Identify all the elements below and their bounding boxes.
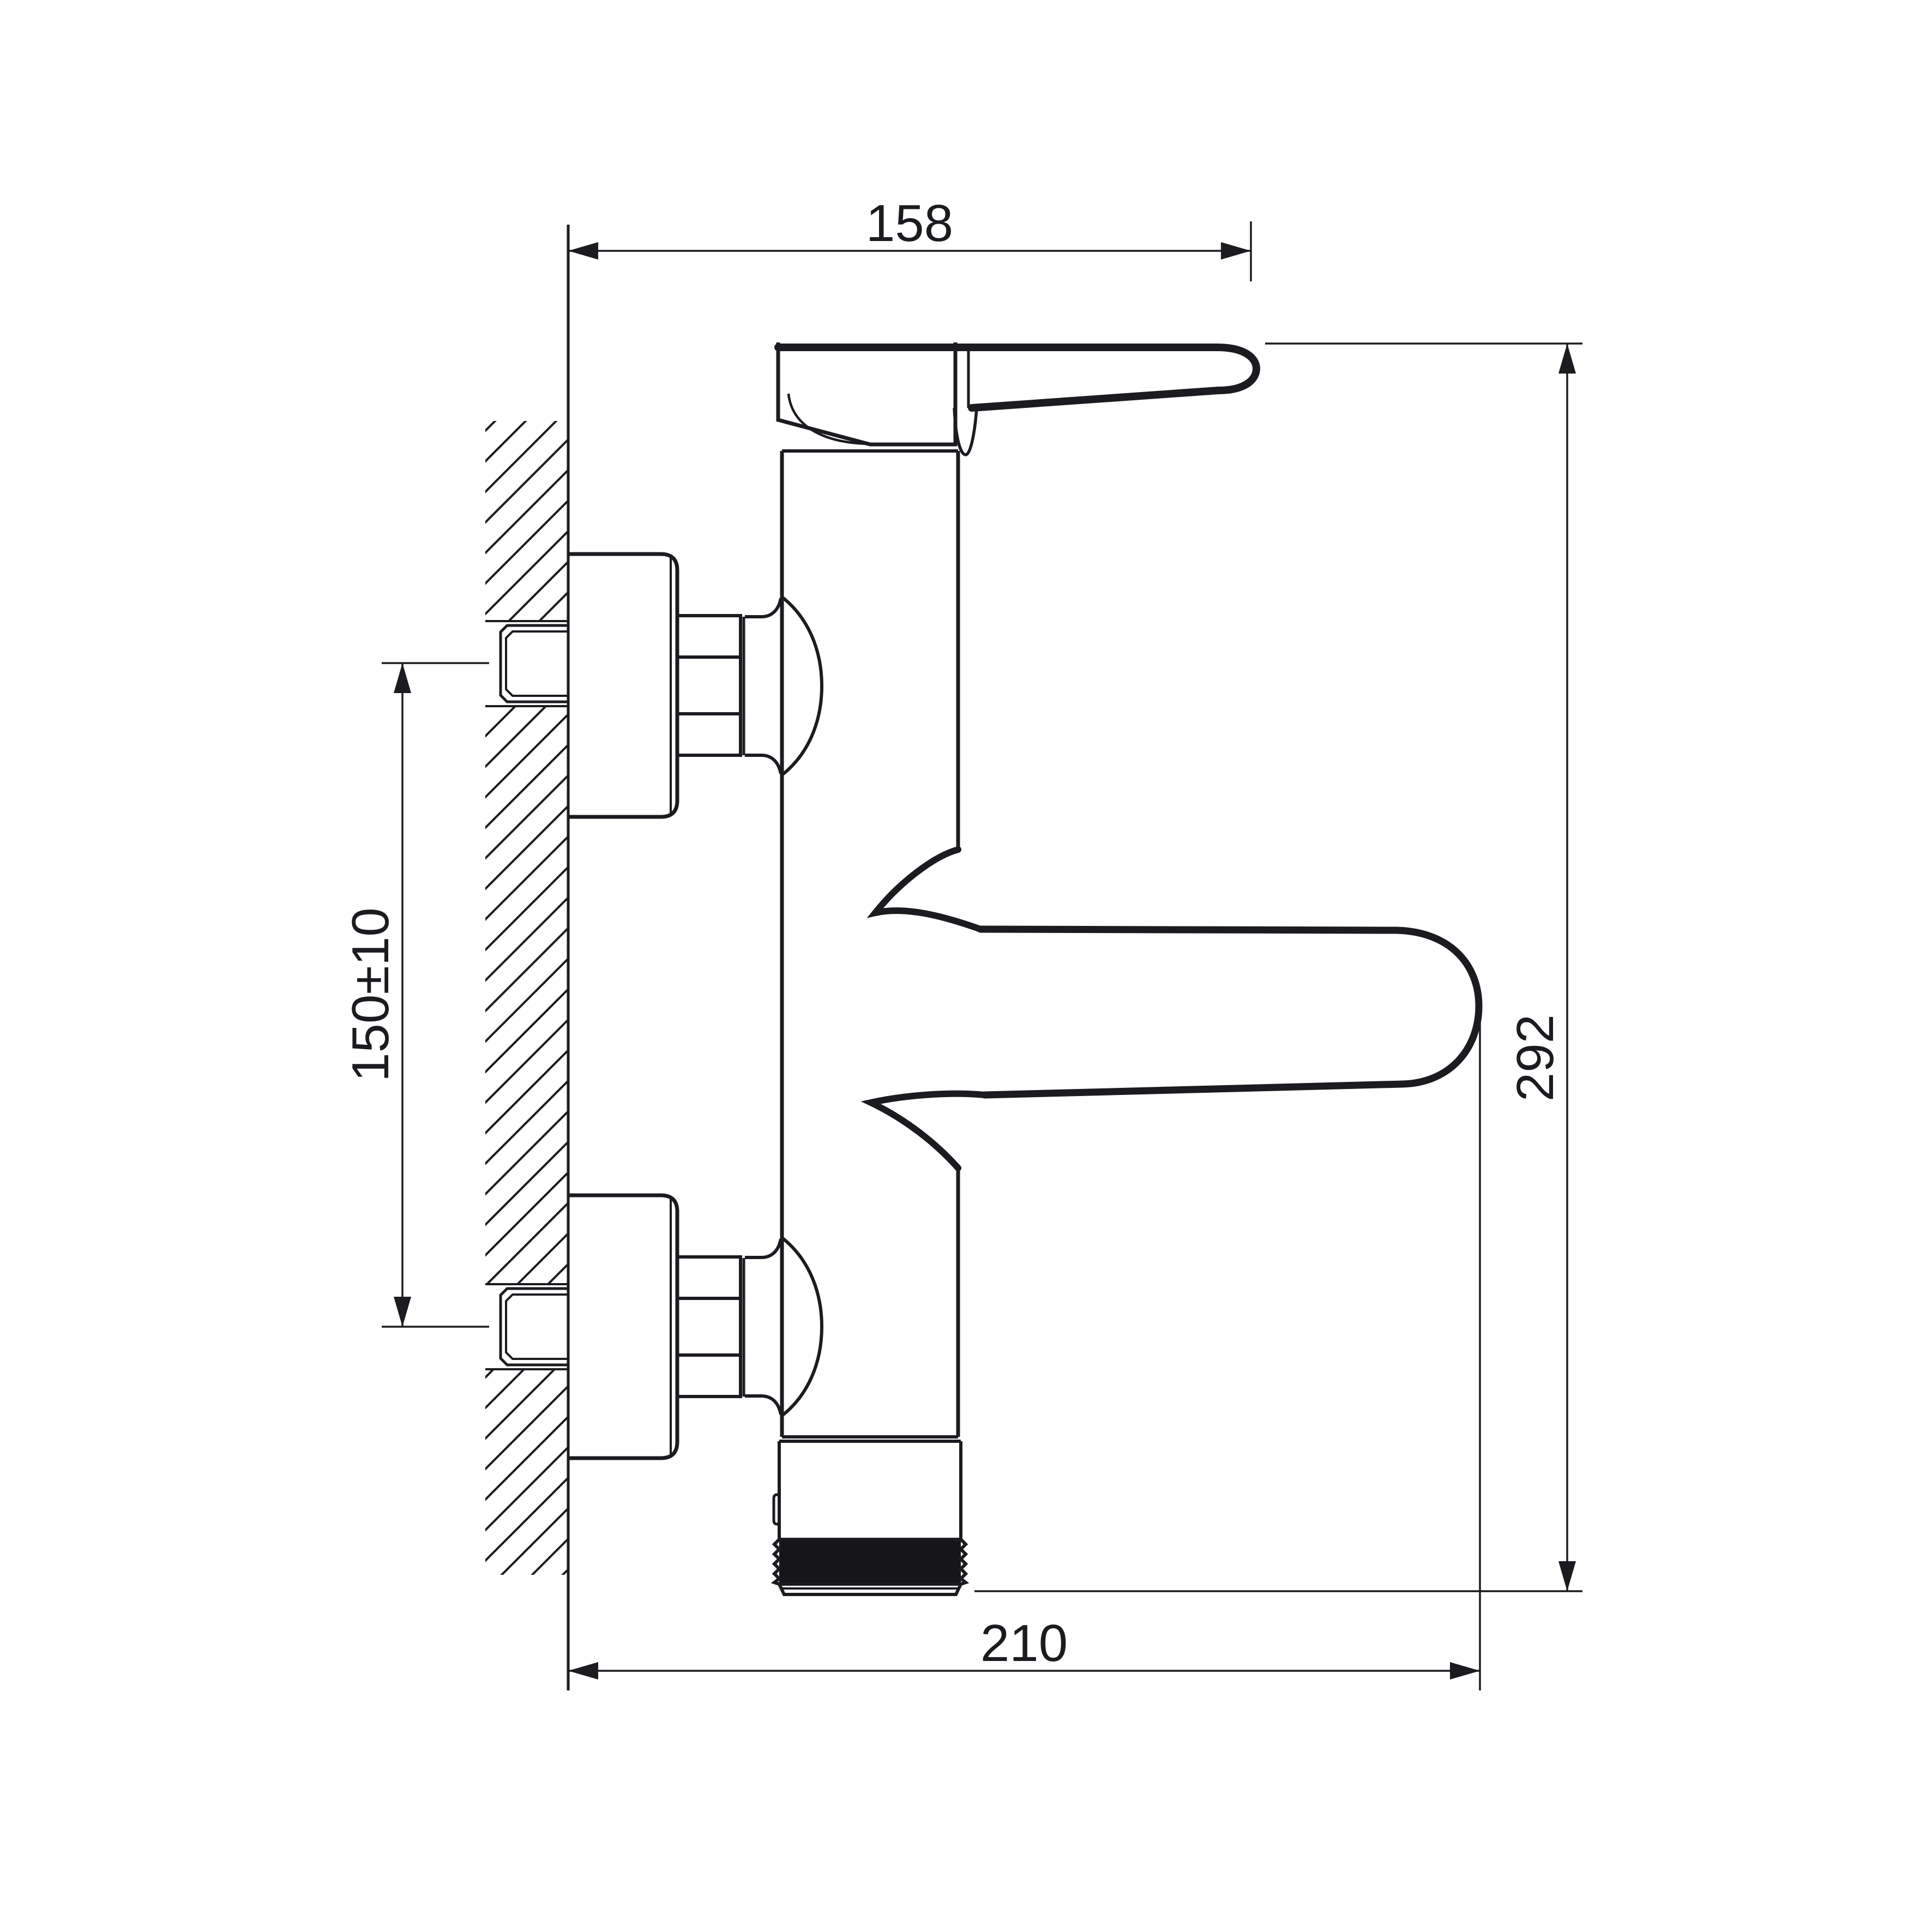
cartridge-cap [778, 342, 958, 451]
arrowhead-left-icon [568, 242, 598, 260]
pipe-union-upper-outer [501, 625, 568, 702]
outlet-thread-teeth-right [961, 1539, 966, 1584]
cap-cone-arc [789, 394, 870, 444]
technical-drawing: 158 292 150±10 210 [0, 0, 1932, 1932]
dimension-bottom-depth: 210 [568, 1009, 1480, 1690]
arrowhead-right-icon [1221, 242, 1251, 260]
wall-hatch-lower [485, 1369, 568, 1575]
dim-text-210: 210 [980, 1614, 1068, 1672]
outlet-thread [779, 1539, 961, 1584]
arrowhead-down-icon [1558, 1561, 1576, 1591]
hex-nut-lower [677, 1257, 741, 1397]
spout-root-fin-top [875, 850, 980, 929]
dimension-right-height: 292 [974, 344, 1582, 1591]
handle-pivot-slot [955, 344, 968, 408]
dim-text-292: 292 [1506, 1014, 1564, 1102]
pipe-union-lower-outer [501, 1289, 568, 1365]
arrowhead-up-icon [1558, 344, 1576, 374]
wall-section [485, 225, 568, 1690]
escutcheon-upper [568, 554, 677, 817]
arrowhead-left-icon [568, 1662, 598, 1680]
spout-root-fin-bottom [871, 1094, 985, 1168]
pipe-union-upper-inner [506, 631, 568, 696]
dim-text-150: 150±10 [341, 907, 400, 1082]
dim-text-158: 158 [866, 194, 953, 252]
handle-outline [778, 347, 1256, 408]
cap-outline [778, 342, 955, 444]
faucet [501, 342, 1479, 1594]
outlet-thread-teeth-left [774, 1539, 779, 1584]
outlet-sleeve [779, 1441, 961, 1539]
spout [871, 850, 1479, 1168]
handle-pivot-boss [954, 408, 977, 455]
shower-outlet [774, 1437, 966, 1594]
faucet-body [782, 451, 958, 1437]
drawing-canvas: 158 292 150±10 210 [0, 0, 1932, 1932]
dimension-left-inlet-spacing: 150±10 [341, 663, 489, 1327]
wall-hatch-upper [485, 421, 568, 621]
outlet-junction [779, 1437, 961, 1441]
pipe-union-lower-inner [506, 1295, 568, 1359]
hex-nut-upper [677, 616, 741, 755]
arrowhead-right-icon [1450, 1662, 1480, 1680]
spout-outline [980, 929, 1479, 1095]
arrowhead-up-icon [394, 663, 411, 693]
dimension-top-width: 158 [568, 194, 1251, 281]
wall-hatch-middle [485, 706, 568, 1284]
escutcheon-lower [568, 1195, 677, 1458]
arrowhead-down-icon [394, 1297, 411, 1327]
